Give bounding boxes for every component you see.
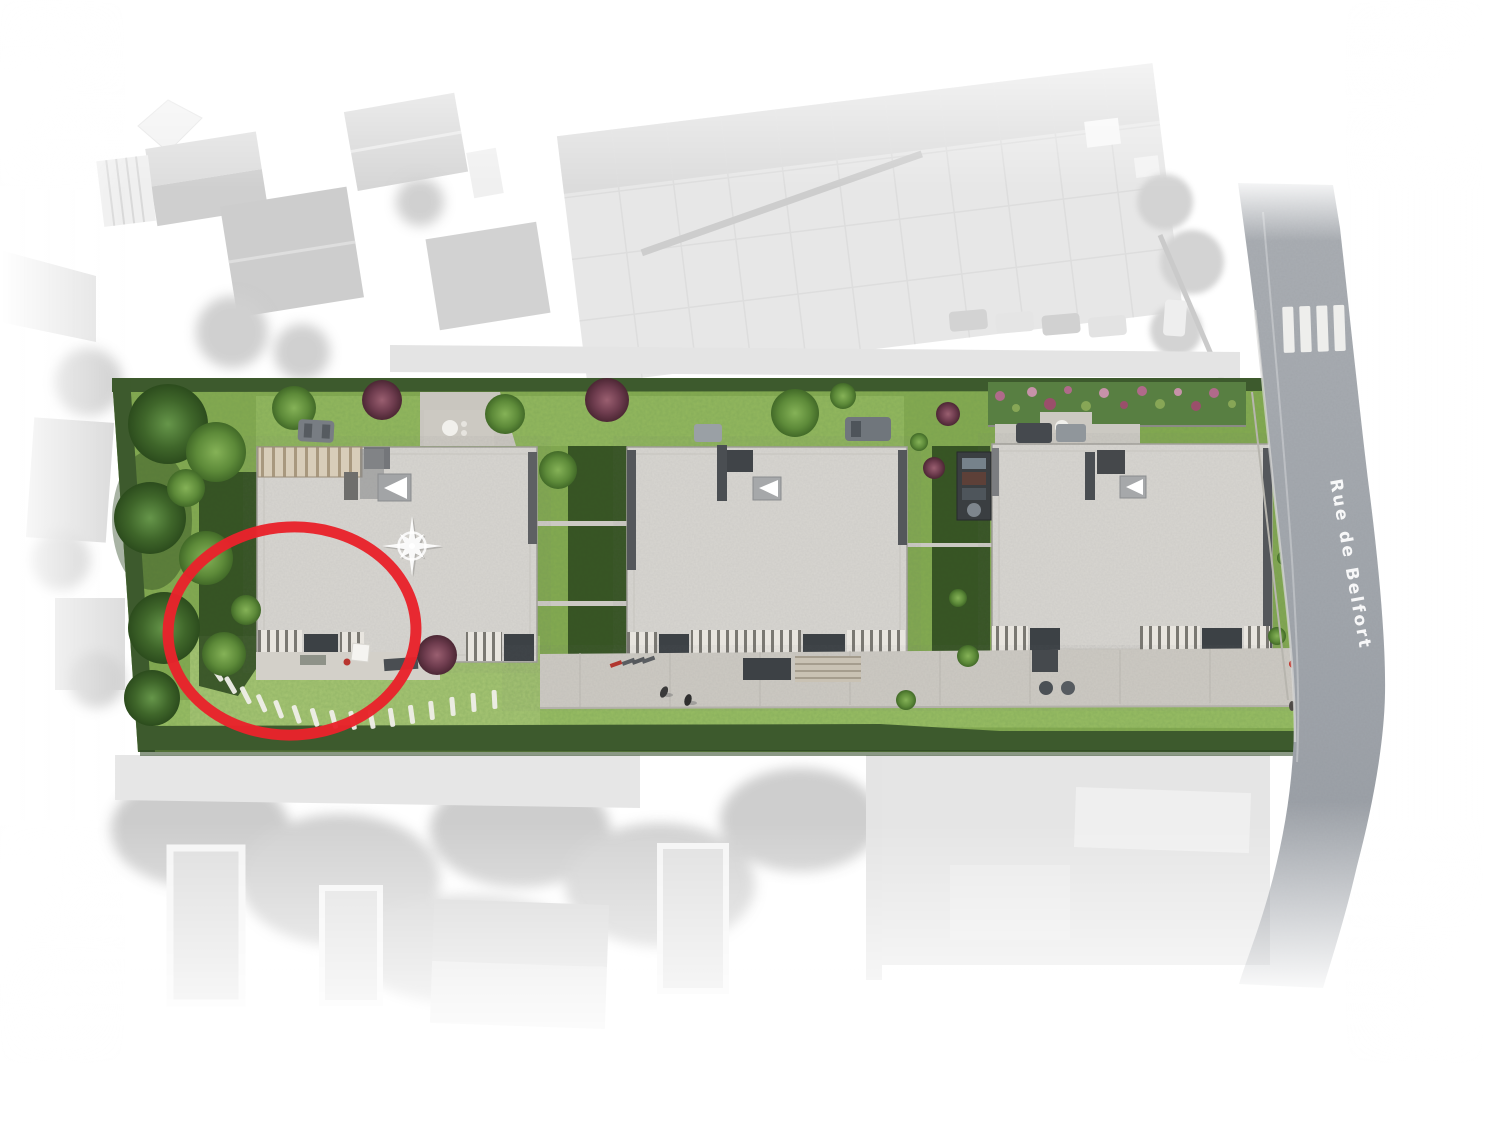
flower-bed (988, 382, 1246, 426)
skylight (1120, 476, 1146, 498)
deck (795, 656, 861, 682)
chimney (727, 450, 753, 472)
site-plan-page: Rue de Belfort (0, 0, 1500, 1125)
building-3 (992, 444, 1272, 656)
hedge-shadow (140, 750, 1296, 756)
building-2 (627, 445, 907, 662)
skylight (753, 477, 781, 500)
site-plan-rendering: Rue de Belfort (0, 0, 1500, 1125)
site-plan (112, 378, 1302, 756)
chimney (344, 472, 358, 500)
building-1 (257, 447, 537, 662)
chimney (1097, 450, 1125, 474)
dark-mat (743, 658, 791, 680)
skylight (378, 474, 411, 501)
utility-enclosure (957, 452, 991, 520)
purple-tree (417, 635, 457, 675)
white-table (351, 643, 370, 662)
